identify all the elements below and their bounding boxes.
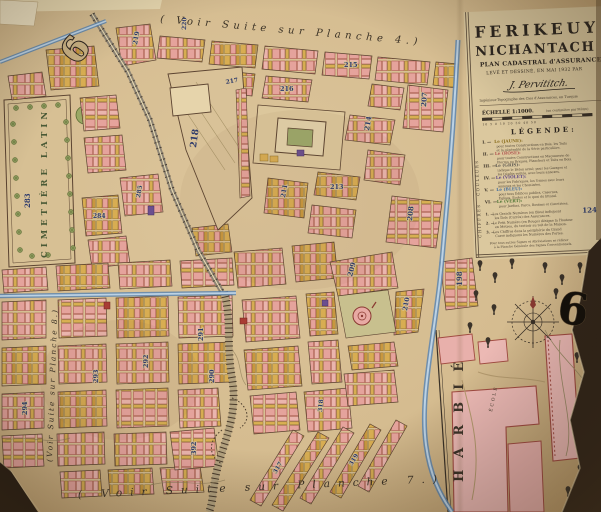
map-sheet: 220 219 218 217 216 215 214 213 211 208 … xyxy=(0,0,601,512)
photo-vignette xyxy=(0,0,601,512)
map-photo: 220 219 218 217 216 215 214 213 211 208 … xyxy=(0,0,601,512)
